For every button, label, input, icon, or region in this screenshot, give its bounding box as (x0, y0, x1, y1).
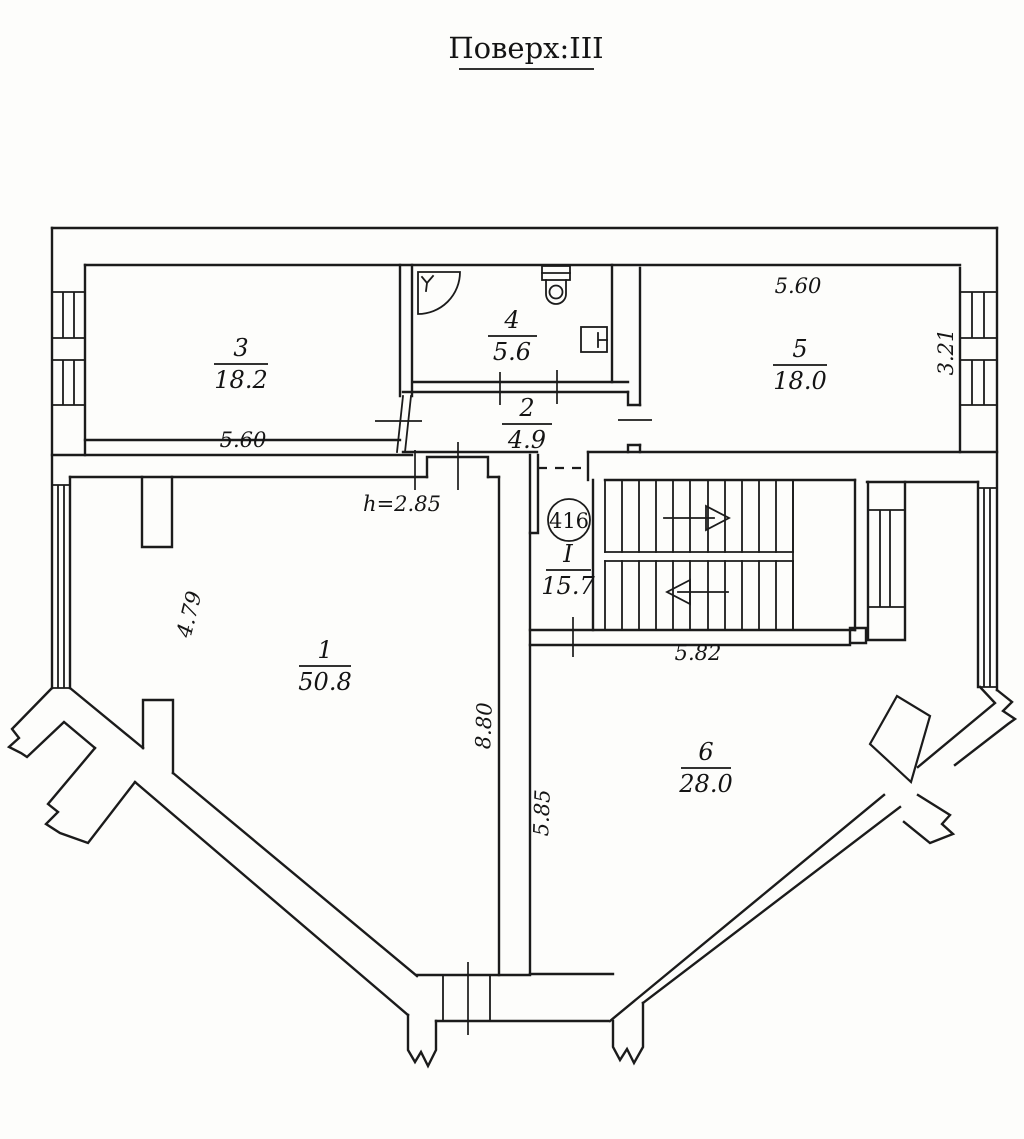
dim-room1-left: 4.79 (172, 589, 207, 641)
room-I-number: I (562, 540, 573, 568)
room2-right-wall (628, 392, 640, 452)
dim-room1-right: 8.80 (471, 702, 497, 750)
room-1-area: 50.8 (298, 668, 351, 696)
dim-room5-depth: 3.21 (934, 329, 958, 376)
window-right-loggia (978, 482, 997, 687)
sink-icon (581, 327, 607, 352)
window-left-2 (52, 360, 85, 405)
room-4-area: 5.6 (493, 338, 531, 366)
left-diagonal-pilaster-upper (143, 700, 173, 773)
right-diagonal-pilaster-lower (904, 795, 953, 843)
room-5-number: 5 (792, 335, 807, 363)
room-5-area: 18.0 (773, 367, 826, 395)
apartment-number-badge: 416 (548, 499, 590, 541)
room-4-number: 4 (503, 306, 519, 334)
shower-icon (418, 272, 460, 314)
window-right-2 (960, 360, 997, 405)
diagonal-walls (9, 687, 1015, 1021)
stair-treads-upper (605, 480, 793, 552)
window-left-1 (52, 292, 85, 338)
room-I-area: 15.7 (541, 572, 595, 600)
window-stair-east-wall (868, 482, 905, 640)
stair-mid-rail (605, 552, 793, 561)
stairs-down-arrow (667, 580, 728, 604)
staircase (530, 480, 866, 645)
labels: 3 18.2 4 5.6 5 18.0 2 4.9 1 50.8 I 15.7 … (172, 274, 958, 837)
room3-right-wall (400, 265, 412, 396)
dim-room5-width: 5.60 (775, 274, 822, 298)
right-diagonal-outer (643, 690, 1015, 1003)
bottom-right-stub-break (613, 1003, 643, 1063)
room-2-number: 2 (518, 394, 534, 422)
left-diagonal-pilaster-lower (46, 748, 135, 843)
stair-treads-lower (605, 561, 793, 630)
room-1-number: 1 (317, 636, 332, 664)
bottom-left-stub-break (408, 1015, 436, 1066)
room4-bottom-wall (403, 382, 628, 392)
apartment-number: 416 (549, 509, 589, 533)
dim-ceiling-height: h=2.85 (363, 492, 441, 516)
window-right-1 (960, 292, 997, 338)
room-2-area: 4.9 (507, 426, 546, 454)
plan-title-group: Поверх:ІІІ (448, 31, 603, 69)
dim-room6-left: 5.85 (529, 789, 555, 837)
bottom-window-lines (443, 975, 490, 1021)
room-3-number: 3 (233, 334, 248, 362)
room-6-number: 6 (698, 738, 713, 766)
window-left-room1 (52, 485, 70, 688)
right-diagonal-inner (610, 687, 995, 1021)
door-leaf-room3 (397, 396, 411, 452)
right-diagonal-pilaster-upper (870, 696, 930, 782)
plan-title: Поверх:ІІІ (448, 31, 603, 65)
floor-plan-drawing: Поверх:ІІІ (0, 0, 1024, 1139)
room1-pillar (142, 477, 172, 547)
dim-stairs-width: 5.82 (675, 641, 722, 665)
toilet-icon (542, 266, 570, 304)
left-diagonal-outer (9, 688, 408, 1015)
room-6-area: 28.0 (678, 770, 732, 798)
scanned-floor-plan-page: Поверх:ІІІ (0, 0, 1024, 1139)
doors (375, 370, 652, 1035)
dim-room3-width: 5.60 (220, 428, 267, 452)
room-3-area: 18.2 (214, 366, 267, 394)
left-diagonal-inner (70, 688, 417, 976)
